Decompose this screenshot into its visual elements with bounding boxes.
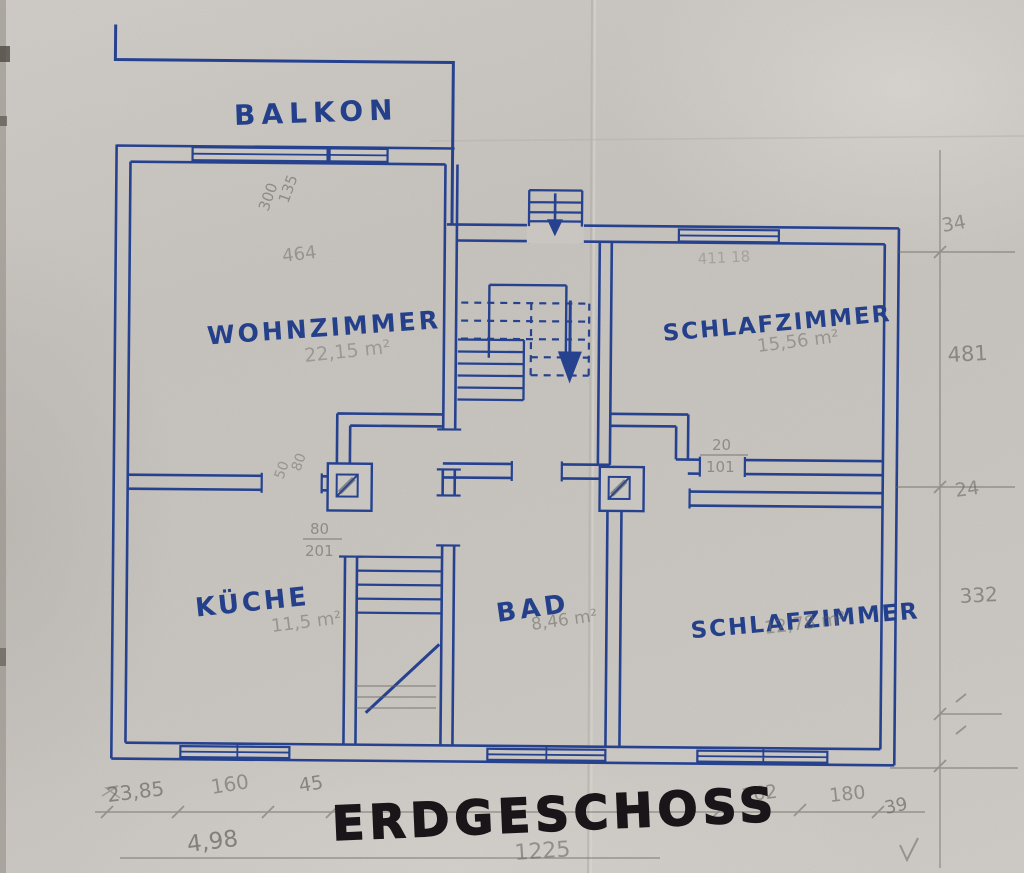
floorplan-svg: BALKON WOHNZIMMER SCHLAFZIMMER KÜCHE BAD… <box>0 0 1024 873</box>
scanned-floorplan-page: BALKON WOHNZIMMER SCHLAFZIMMER KÜCHE BAD… <box>0 0 1024 873</box>
window-schlafzimmer-bottom <box>697 749 827 765</box>
chimney-1 <box>327 463 371 510</box>
chimney-2 <box>599 467 643 511</box>
balcony-door <box>330 148 388 162</box>
stair-stringer <box>523 340 524 400</box>
dim-right-24: 24 <box>954 477 981 502</box>
frac2-bottom: 101 <box>706 458 735 476</box>
paper-left-edge-shadow <box>0 0 6 873</box>
window-wohnzimmer-balcony <box>193 147 328 161</box>
edge-mark-1 <box>0 46 10 62</box>
room-label-balkon: BALKON <box>234 93 400 132</box>
dim-bottom-180: 180 <box>828 781 866 807</box>
dim-right-34: 34 <box>940 211 968 237</box>
window-schlafzimmer-top <box>679 229 779 242</box>
window-kueche <box>180 744 289 760</box>
dim-wohnzimmer-width: 464 <box>281 242 318 267</box>
dim-schlafzimmer-top-faint: 411 18 <box>697 247 750 268</box>
window-bad <box>487 747 605 763</box>
edge-mark-2 <box>0 116 7 126</box>
frac1-top: 80 <box>310 520 329 538</box>
dim-right-481: 481 <box>947 341 988 367</box>
dim-bottom-45: 45 <box>297 771 324 797</box>
dim-right-332: 332 <box>959 582 998 608</box>
frac2-top: 20 <box>712 436 731 454</box>
edge-mark-3 <box>0 648 6 666</box>
frac1-bottom: 201 <box>305 542 334 560</box>
